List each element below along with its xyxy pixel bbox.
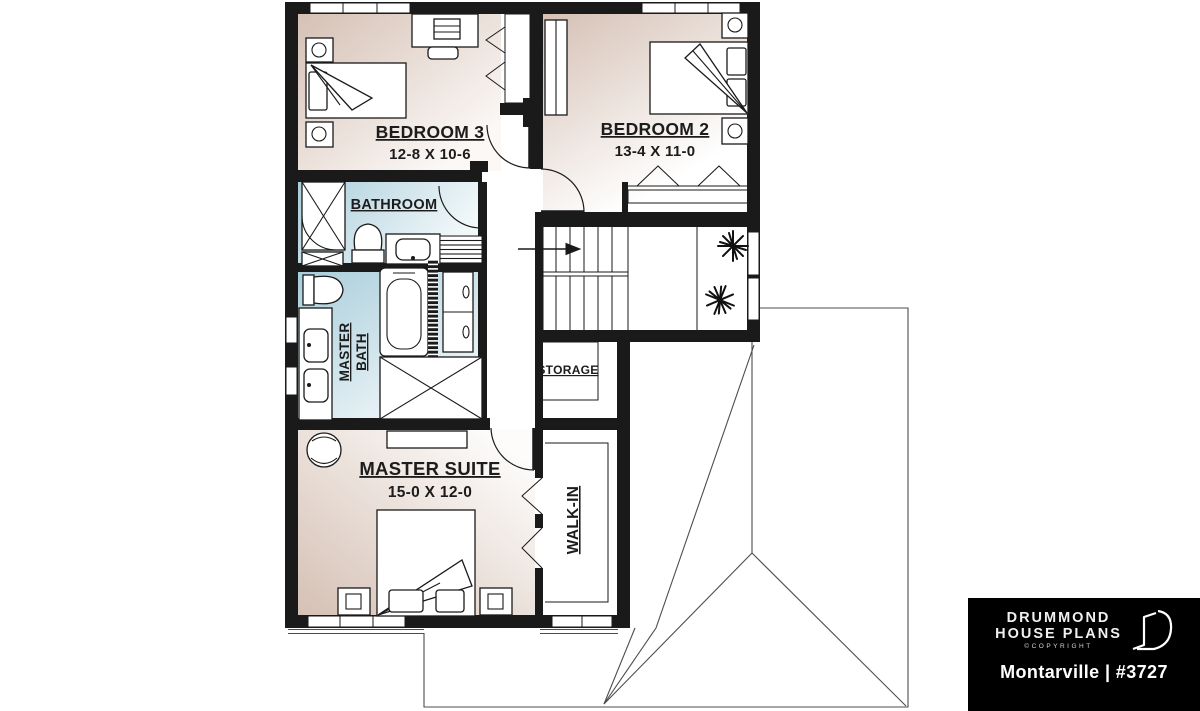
master-bath-label-line1: MASTER [337, 323, 352, 382]
master-bath-label-line2: BATH [354, 333, 369, 371]
stairs-direction-arrow [518, 244, 580, 255]
company-name-line1: DRUMMOND [1007, 611, 1111, 626]
toilet [303, 275, 343, 305]
bedroom3-window [310, 3, 410, 13]
desk-chair [428, 47, 458, 59]
drummond-d-icon [1129, 608, 1173, 654]
dresser [387, 431, 467, 448]
branding-panel: DRUMMOND HOUSE PLANS ©COPYRIGHT Montarvi… [968, 598, 1200, 711]
master-suite-window [308, 616, 405, 627]
bedroom2-label: BEDROOM 2 [601, 119, 710, 139]
bathroom-label: BATHROOM [351, 197, 438, 213]
copyright-label: ©COPYRIGHT [1024, 644, 1092, 651]
nightstand [306, 38, 333, 62]
master-suite-dims: 15-0 X 12-0 [388, 484, 472, 501]
bedroom2-window [642, 3, 740, 13]
bedroom3-dims: 12-8 X 10-6 [389, 146, 471, 163]
floor-plan-page: BEDROOM 3 12-8 X 10-6 BEDROOM 2 13-4 X 1… [0, 0, 1200, 711]
vanity-sink [386, 234, 440, 264]
company-logo: DRUMMOND HOUSE PLANS ©COPYRIGHT [995, 608, 1173, 654]
tiled-wall [428, 260, 438, 357]
master-bath-window-1 [286, 317, 297, 343]
nightstand [722, 13, 748, 38]
company-name-line2: HOUSE PLANS [995, 627, 1122, 642]
walk-in-label: WALK-IN [565, 486, 582, 554]
double-vanity [299, 308, 332, 420]
chair [307, 433, 341, 467]
bedroom3-label: BEDROOM 3 [376, 122, 485, 142]
monitor [434, 19, 460, 39]
pillow [727, 48, 746, 75]
master-bath-fixtures [299, 260, 482, 420]
hall-window-1 [748, 232, 759, 275]
hall-window-2 [748, 278, 759, 320]
plant-icon [700, 280, 739, 319]
nightstand [306, 122, 333, 147]
storage-label: STORAGE [537, 363, 598, 377]
linen-cabinet [443, 272, 473, 352]
nightstand [722, 118, 748, 144]
nightstand [338, 588, 370, 615]
master-bath-window-2 [286, 367, 297, 395]
pillow [389, 590, 423, 612]
pillow [436, 590, 464, 612]
plant-icon [718, 231, 748, 261]
shelving [440, 236, 482, 264]
master-suite-label: MASTER SUITE [359, 458, 500, 479]
nightstand [480, 588, 512, 615]
staircase [518, 227, 628, 330]
bathtub [380, 268, 428, 356]
toilet [352, 224, 384, 263]
bedroom2-dims: 13-4 X 11-0 [615, 143, 696, 160]
plan-title: Montarville | #3727 [1000, 662, 1168, 683]
closet-box [380, 357, 482, 419]
